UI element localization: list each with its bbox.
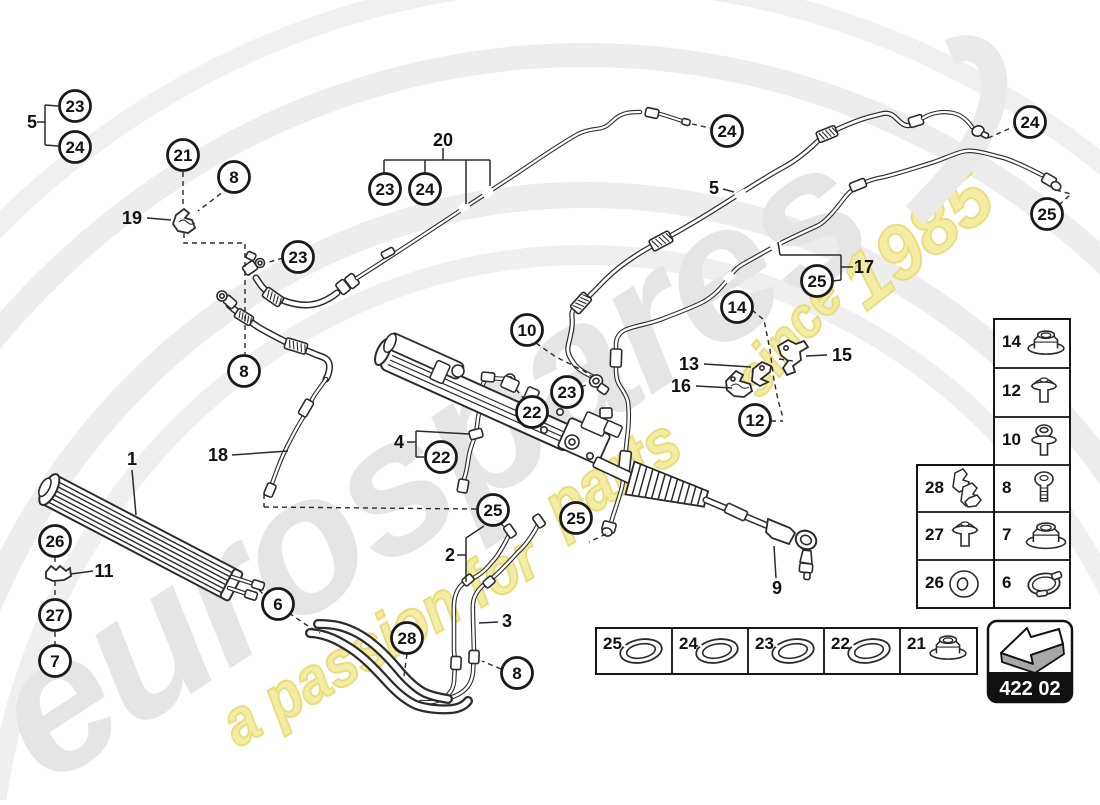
svg-text:17: 17 bbox=[854, 257, 874, 277]
svg-text:8: 8 bbox=[512, 664, 521, 683]
svg-text:5: 5 bbox=[27, 112, 37, 132]
svg-text:28: 28 bbox=[398, 629, 417, 648]
svg-text:22: 22 bbox=[831, 634, 850, 653]
svg-text:23: 23 bbox=[66, 97, 85, 116]
svg-text:13: 13 bbox=[679, 354, 699, 374]
svg-text:24: 24 bbox=[416, 180, 435, 199]
svg-text:23: 23 bbox=[755, 634, 774, 653]
svg-text:14: 14 bbox=[728, 298, 747, 317]
svg-text:28: 28 bbox=[925, 478, 944, 497]
svg-text:26: 26 bbox=[46, 532, 65, 551]
svg-text:26: 26 bbox=[925, 573, 944, 592]
svg-text:2: 2 bbox=[445, 545, 455, 565]
svg-text:7: 7 bbox=[50, 652, 59, 671]
svg-text:23: 23 bbox=[289, 248, 308, 267]
svg-text:25: 25 bbox=[567, 509, 586, 528]
svg-text:5: 5 bbox=[709, 178, 719, 198]
svg-text:25: 25 bbox=[603, 634, 622, 653]
svg-text:8: 8 bbox=[239, 362, 248, 381]
svg-text:6: 6 bbox=[273, 595, 282, 614]
svg-text:3: 3 bbox=[502, 611, 512, 631]
svg-text:27: 27 bbox=[925, 525, 944, 544]
svg-text:10: 10 bbox=[518, 321, 537, 340]
svg-text:24: 24 bbox=[1021, 113, 1040, 132]
svg-text:1: 1 bbox=[127, 449, 137, 469]
svg-text:21: 21 bbox=[174, 146, 193, 165]
svg-text:422 02: 422 02 bbox=[999, 678, 1060, 700]
svg-text:4: 4 bbox=[394, 432, 404, 452]
svg-text:12: 12 bbox=[1002, 381, 1021, 400]
svg-text:6: 6 bbox=[1002, 573, 1011, 592]
svg-text:16: 16 bbox=[671, 376, 691, 396]
svg-text:7: 7 bbox=[1002, 525, 1011, 544]
svg-text:24: 24 bbox=[66, 138, 85, 157]
svg-text:22: 22 bbox=[432, 448, 451, 467]
svg-text:27: 27 bbox=[46, 606, 65, 625]
svg-text:23: 23 bbox=[376, 180, 395, 199]
svg-text:8: 8 bbox=[1002, 478, 1011, 497]
svg-text:10: 10 bbox=[1002, 430, 1021, 449]
svg-text:12: 12 bbox=[746, 411, 765, 430]
svg-text:25: 25 bbox=[808, 272, 827, 291]
svg-text:24: 24 bbox=[718, 122, 737, 141]
svg-text:24: 24 bbox=[679, 634, 698, 653]
svg-text:22: 22 bbox=[523, 403, 542, 422]
svg-text:9: 9 bbox=[772, 578, 782, 598]
svg-text:8: 8 bbox=[229, 168, 238, 187]
svg-text:20: 20 bbox=[433, 130, 453, 150]
svg-text:25: 25 bbox=[1038, 205, 1057, 224]
svg-text:11: 11 bbox=[94, 561, 113, 581]
svg-text:18: 18 bbox=[208, 445, 228, 465]
svg-text:21: 21 bbox=[907, 634, 926, 653]
svg-text:19: 19 bbox=[122, 208, 142, 228]
svg-text:14: 14 bbox=[1002, 332, 1021, 351]
svg-text:15: 15 bbox=[832, 345, 852, 365]
svg-text:25: 25 bbox=[484, 501, 503, 520]
svg-text:23: 23 bbox=[558, 383, 577, 402]
